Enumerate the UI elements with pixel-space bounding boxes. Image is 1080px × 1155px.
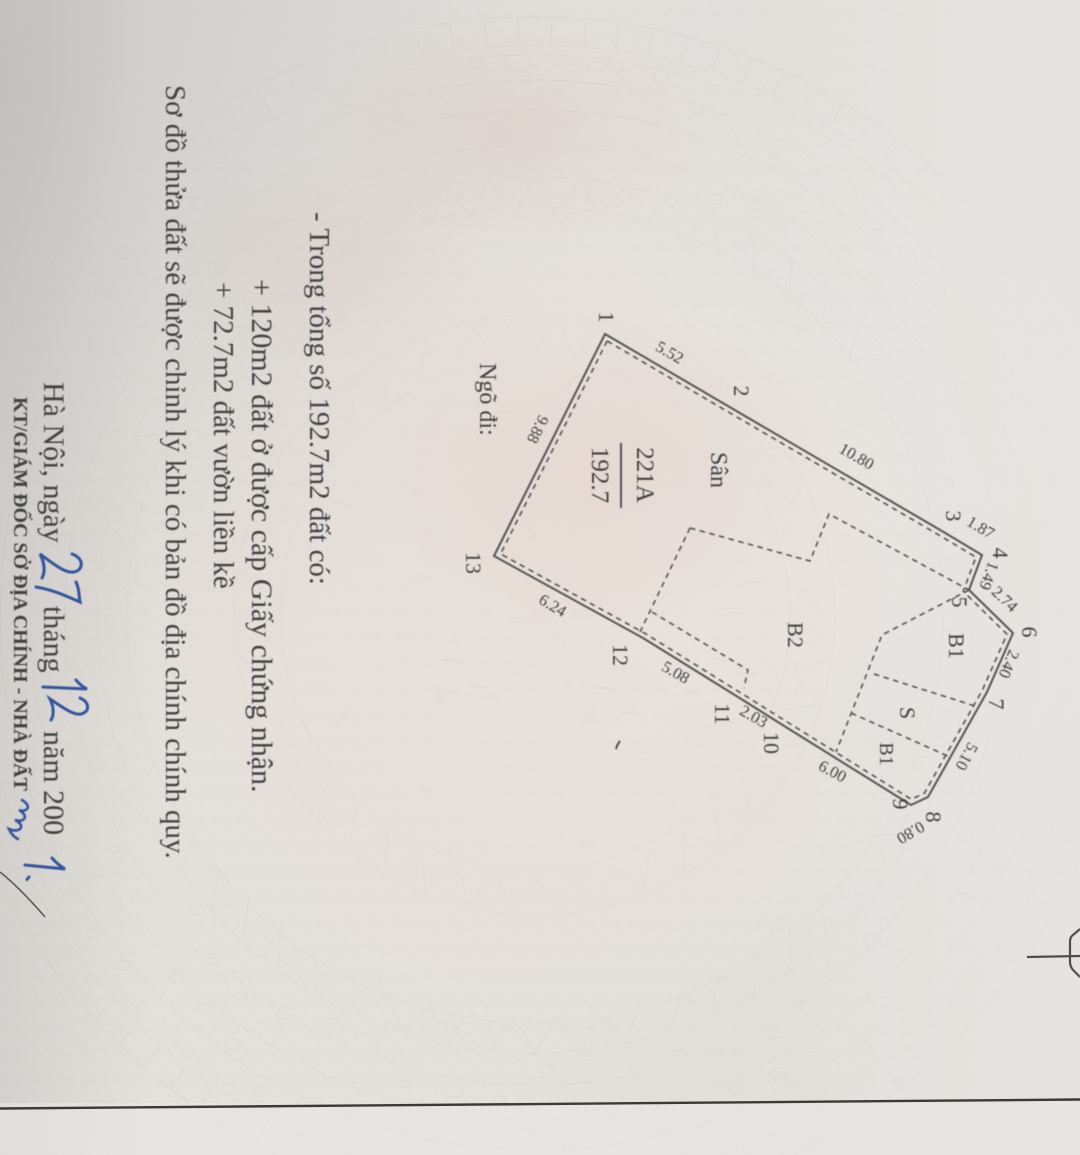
svg-text:tháng: tháng [37,606,70,673]
svg-text:S: S [895,707,920,719]
svg-text:3: 3 [941,511,966,522]
svg-text:1: 1 [594,312,619,323]
svg-text:12: 12 [608,644,633,666]
svg-text:+ 72.7m2 đất vườn liền kề: + 72.7m2 đất vườn liền kề [207,282,239,589]
svg-text:Sân: Sân [705,452,731,488]
svg-text:Sơ đồ thửa đất sẽ được chỉnh l: Sơ đồ thửa đất sẽ được chỉnh lý khi có b… [159,85,191,859]
svg-text:B2: B2 [783,622,808,648]
svg-text:5: 5 [947,597,972,608]
svg-text:11: 11 [710,703,735,724]
svg-text:7: 7 [984,699,1009,710]
svg-text:B1: B1 [875,742,897,765]
svg-text:4: 4 [988,548,1013,559]
svg-text:2: 2 [729,386,754,397]
svg-text:+ 120m2 đất ở được cấp Giấy ch: + 120m2 đất ở được cấp Giấy chứng nhận. [245,279,278,793]
svg-text:Ngõ đi:: Ngõ đi: [474,363,500,436]
svg-text:8: 8 [921,812,946,823]
svg-text:năm 200: năm 200 [37,731,70,835]
svg-text:KT/GIÁM ĐỐC SỞ ĐỊA CHÍNH - NHÀ: KT/GIÁM ĐỐC SỞ ĐỊA CHÍNH - NHÀ ĐẤT [9,397,33,792]
svg-text:Hà Nội, ngày: Hà Nội, ngày [37,382,70,543]
svg-text:6: 6 [1017,627,1042,638]
svg-text:10: 10 [759,732,784,754]
svg-text:13: 13 [461,552,486,574]
svg-text:B1: B1 [944,633,969,659]
svg-text:221A: 221A [631,447,658,503]
svg-text:192.7: 192.7 [586,447,613,503]
svg-text:- Trong tổng số 192.7m2 đất có: - Trong tổng số 192.7m2 đất có: [303,212,335,585]
svg-text:9: 9 [888,799,913,810]
